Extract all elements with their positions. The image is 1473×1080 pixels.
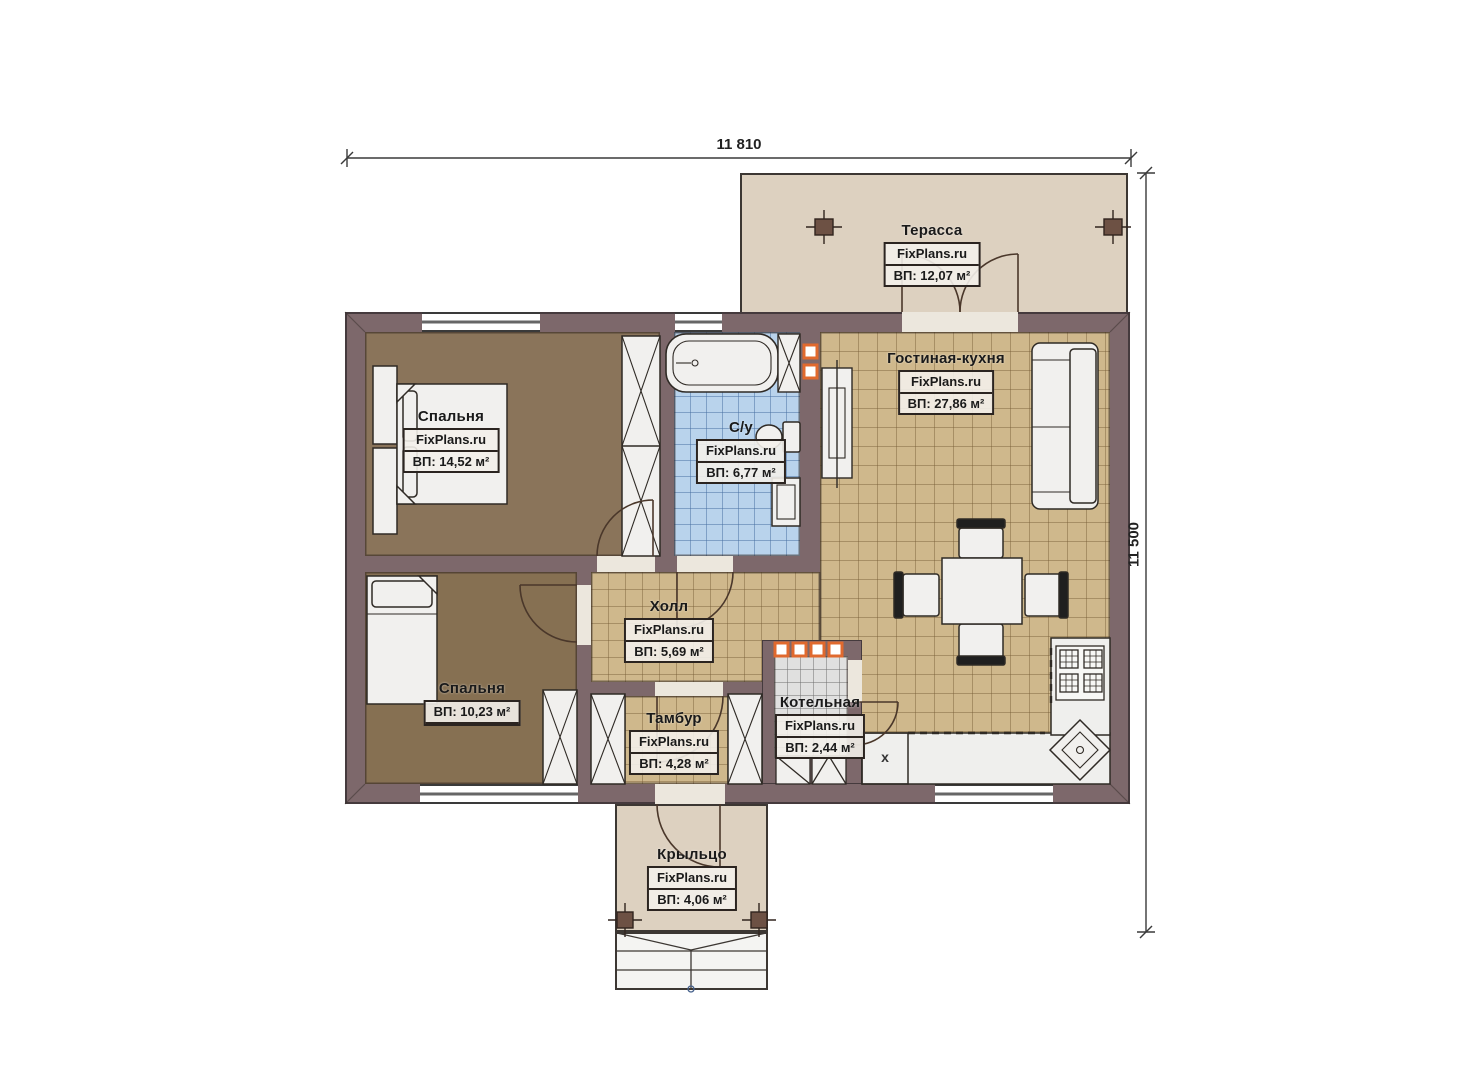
kitchen-cabinet-mark: x [876,749,894,765]
room-label-bedroom-2: Спальня ВП: 10,23 м² [424,680,521,726]
terrace-door-opening [902,312,1018,332]
watermark: ВП: 10,23 м² [426,702,519,724]
watermark: FixPlans.ru [886,244,979,266]
room-info-box: FixPlans.ru ВП: 4,28 м² [629,730,719,775]
room-label-bathroom: С/у FixPlans.ru ВП: 6,77 м² [696,419,786,484]
room-name: Терасса [884,222,981,239]
floor-plan: 11 810 11 500 Терасса FixPlans.ru ВП: 12… [0,0,1473,1080]
room-label-terrace: Терасса FixPlans.ru ВП: 12,07 м² [884,222,981,287]
watermark: FixPlans.ru [900,372,993,394]
room-area: ВП: 14,52 м² [405,452,498,472]
room-area: ВП: 4,06 м² [649,890,735,910]
wall-mid-horizontal-c [733,556,820,572]
wall-bedroom1-bathroom [660,332,674,556]
porch-door-opening [655,784,725,804]
wall-hall-vestibule-a [577,682,655,696]
room-area: ВП: 4,28 м² [631,754,717,774]
room-label-bedroom-1: Спальня FixPlans.ru ВП: 14,52 м² [403,408,500,473]
wall-bedroom2-right-b [577,645,591,784]
dimension-height-label: 11 500 [1126,515,1143,575]
wall-mid-horizontal-b [655,556,677,572]
room-name: Спальня [424,680,521,697]
window-bedroom1-top [422,312,540,332]
bedroom1-door-opening [597,556,655,572]
window-kitchen-bottom [935,784,1053,804]
room-label-living-kitchen: Гостиная-кухня FixPlans.ru ВП: 27,86 м² [887,350,1005,415]
room-info-box: FixPlans.ru ВП: 4,06 м² [647,866,737,911]
room-label-porch: Крыльцо FixPlans.ru ВП: 4,06 м² [647,846,737,911]
watermark: FixPlans.ru [698,441,784,463]
room-info-box: FixPlans.ru ВП: 5,69 м² [624,618,714,663]
room-info-box: ВП: 10,23 м² [424,700,521,726]
vestibule-door-opening [655,682,723,696]
watermark: FixPlans.ru [649,868,735,890]
room-area: ВП: 2,44 м² [777,738,863,758]
bedroom2-door-opening [577,585,591,645]
room-name: С/у [696,419,786,436]
room-info-box: FixPlans.ru ВП: 2,44 м² [775,714,865,759]
watermark: FixPlans.ru [405,430,498,452]
room-area: ВП: 27,86 м² [900,394,993,414]
watermark: FixPlans.ru [631,732,717,754]
room-area: ВП: 5,69 м² [626,642,712,662]
wall-bathroom-living [800,332,820,572]
room-label-hall: Холл FixPlans.ru ВП: 5,69 м² [624,598,714,663]
bathroom-door-opening [677,556,733,572]
room-label-boiler: Котельная FixPlans.ru ВП: 2,44 м² [775,694,865,759]
floor-bedroom-2 [365,572,577,784]
room-info-box: FixPlans.ru ВП: 12,07 м² [884,242,981,287]
room-name: Котельная [775,694,865,711]
room-label-vestibule: Тамбур FixPlans.ru ВП: 4,28 м² [629,710,719,775]
porch-steps [615,932,768,990]
wall-mid-horizontal-a [365,556,597,572]
watermark: FixPlans.ru [777,716,863,738]
dimension-width-label: 11 810 [699,136,779,153]
room-name: Тамбур [629,710,719,727]
room-area: ВП: 12,07 м² [886,266,979,286]
window-bedroom2-bottom [420,784,578,804]
room-name: Крыльцо [647,846,737,863]
room-name: Холл [624,598,714,615]
wall-bedroom2-right-a [577,572,591,585]
room-info-box: FixPlans.ru ВП: 14,52 м² [403,428,500,473]
watermark: FixPlans.ru [626,620,712,642]
room-info-box: FixPlans.ru ВП: 6,77 м² [696,439,786,484]
window-bathroom-top [675,312,722,332]
room-area: ВП: 6,77 м² [698,463,784,483]
room-info-box: FixPlans.ru ВП: 27,86 м² [898,370,995,415]
room-name: Спальня [403,408,500,425]
wall-hall-vestibule-b [723,682,762,696]
room-name: Гостиная-кухня [887,350,1005,367]
